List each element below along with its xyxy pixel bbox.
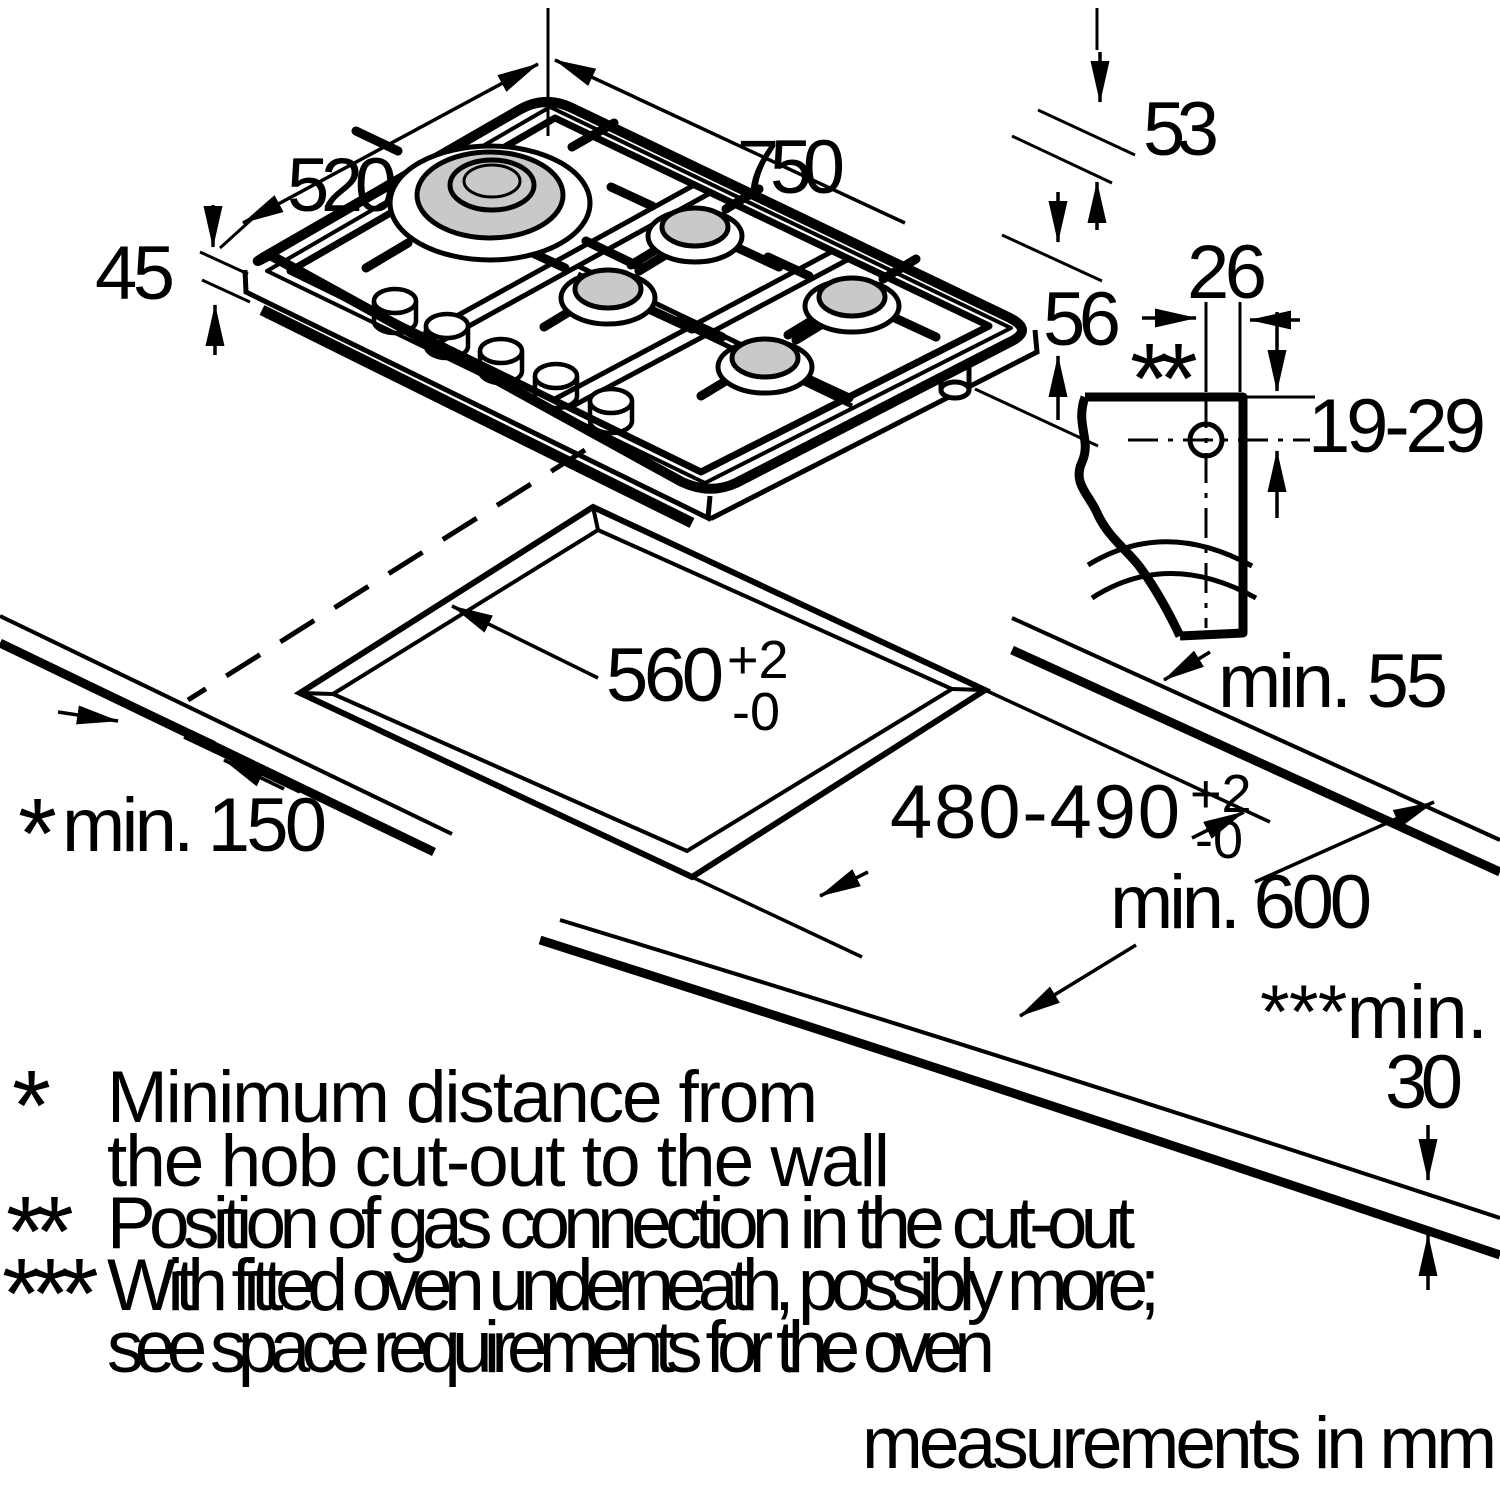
units-note: measurements in mm bbox=[862, 1403, 1497, 1484]
ext-tick-520 bbox=[220, 210, 262, 248]
label-750: 750 bbox=[737, 125, 845, 210]
label-26: 26 bbox=[1187, 230, 1267, 315]
label-560: 560 bbox=[606, 633, 724, 718]
label-min55: min. 55 bbox=[1218, 639, 1448, 724]
footnote-3-line-2: see space requirements for the oven bbox=[107, 1307, 995, 1388]
footnote-1-marker: * bbox=[12, 1050, 50, 1162]
label-53: 53 bbox=[1143, 87, 1219, 172]
ext-line-56-top bbox=[1002, 235, 1102, 281]
label-min30-value: 30 bbox=[1385, 1040, 1463, 1125]
burner-right bbox=[805, 278, 899, 332]
burner-top bbox=[648, 208, 742, 262]
label-560-sup: +2 bbox=[727, 630, 789, 690]
ext-lines-53 bbox=[1012, 110, 1135, 183]
label-min150: min. 150 bbox=[62, 783, 327, 868]
label-520: 520 bbox=[287, 143, 397, 228]
section-break-line-2 bbox=[1092, 574, 1256, 599]
footnote-3-marker: *** bbox=[2, 1238, 98, 1350]
arrow-min150-left bbox=[58, 712, 118, 721]
label-19-29: 19-29 bbox=[1308, 384, 1486, 469]
ext-lines-45 bbox=[200, 252, 250, 302]
section-break-line-1 bbox=[1088, 542, 1252, 566]
label-min600: min. 600 bbox=[1110, 860, 1372, 945]
arrow-min600-lower bbox=[1020, 945, 1136, 1016]
label-560-sub: -0 bbox=[732, 682, 780, 742]
burner-left bbox=[561, 270, 655, 324]
wok-burner bbox=[390, 146, 590, 260]
footnotes: * Minimum distance from the hob cut-out … bbox=[2, 1050, 1497, 1484]
ext-lines-26 bbox=[1206, 302, 1240, 392]
installation-diagram-page: 750 520 45 53 56 26 ** 19-29 min. 55 560… bbox=[0, 0, 1500, 1494]
ext-line-wall bbox=[118, 697, 215, 743]
arrow-cutout-width bbox=[452, 606, 598, 678]
burner-front bbox=[718, 339, 812, 393]
label-gas-marker: ** bbox=[1130, 323, 1197, 435]
arrow-min55 bbox=[1164, 652, 1210, 680]
label-min150-marker: * bbox=[18, 778, 56, 890]
hob-installation-diagram: 750 520 45 53 56 26 ** 19-29 min. 55 560… bbox=[0, 0, 1500, 1494]
label-45: 45 bbox=[95, 231, 175, 316]
arrow-cutout-depth-lower bbox=[820, 872, 868, 896]
label-480-490: 480-490 bbox=[890, 770, 1180, 855]
label-56: 56 bbox=[1043, 277, 1121, 362]
